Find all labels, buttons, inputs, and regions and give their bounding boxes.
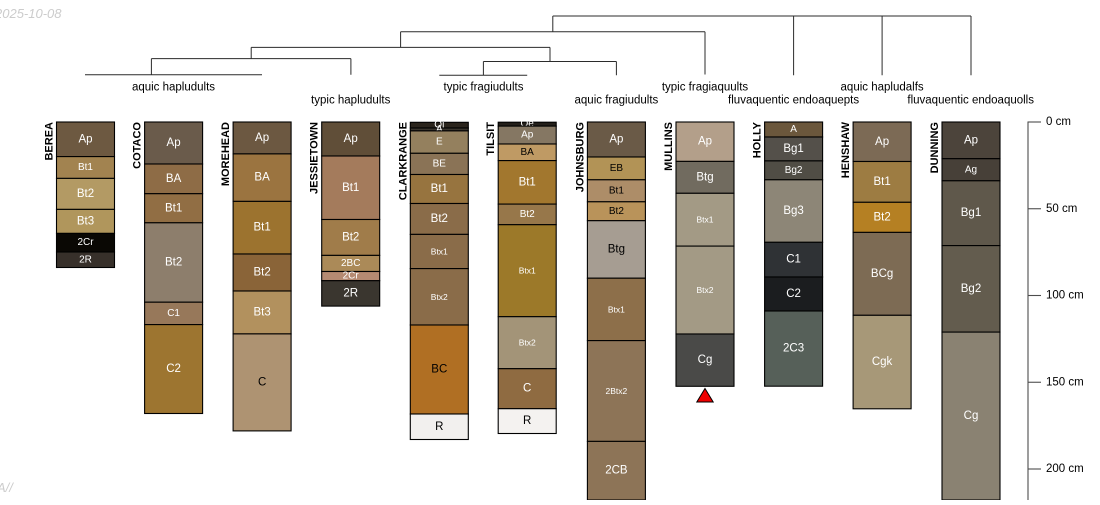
svg-text:DUNNING: DUNNING — [929, 122, 941, 173]
svg-text:COTACO: COTACO — [132, 122, 144, 169]
svg-text:2R: 2R — [79, 254, 92, 265]
svg-text:HOLLY: HOLLY — [752, 121, 764, 158]
svg-text:Bg2: Bg2 — [785, 165, 803, 176]
svg-text:2Cr: 2Cr — [343, 271, 360, 282]
svg-text:Bt2: Bt2 — [165, 257, 182, 269]
svg-text:Ap: Ap — [875, 136, 889, 148]
svg-text:100 cm: 100 cm — [1046, 290, 1084, 302]
svg-text:Ap: Ap — [521, 130, 534, 141]
svg-text:C: C — [258, 376, 266, 388]
svg-text:JOHNSBURG: JOHNSBURG — [574, 122, 586, 192]
svg-text:R: R — [523, 415, 531, 427]
svg-text:Btg: Btg — [608, 243, 625, 255]
svg-text:MOREHEAD: MOREHEAD — [220, 122, 232, 186]
svg-text:MULLINS: MULLINS — [663, 122, 675, 171]
svg-text:A: A — [790, 124, 797, 135]
svg-text:Bg3: Bg3 — [783, 205, 803, 217]
svg-text:Ag: Ag — [965, 164, 977, 175]
svg-text:Bg1: Bg1 — [961, 207, 981, 219]
svg-text:Cgk: Cgk — [872, 356, 893, 368]
svg-text:Ap: Ap — [255, 132, 269, 144]
svg-text:Cg: Cg — [964, 410, 979, 422]
svg-text:2BC: 2BC — [341, 258, 360, 269]
svg-text:2025-10-08: 2025-10-08 — [0, 6, 62, 21]
svg-text:fluvaquentic endoaquolls: fluvaquentic endoaquolls — [907, 95, 1034, 107]
svg-text:BEREA: BEREA — [44, 122, 56, 161]
svg-text:A//: A// — [0, 480, 14, 495]
svg-text:EB: EB — [610, 163, 624, 174]
svg-text:C2: C2 — [166, 363, 181, 375]
svg-text:Bt1: Bt1 — [342, 182, 359, 194]
svg-text:aquic hapludalfs: aquic hapludalfs — [841, 81, 924, 93]
svg-text:Btx1: Btx1 — [608, 304, 625, 314]
svg-text:Bt2: Bt2 — [873, 211, 890, 223]
svg-text:Ap: Ap — [167, 137, 181, 149]
svg-text:C2: C2 — [786, 288, 801, 300]
svg-text:aquic fragiudults: aquic fragiudults — [575, 95, 659, 107]
svg-text:Bt2: Bt2 — [253, 267, 270, 279]
svg-text:typic fragiaquults: typic fragiaquults — [662, 81, 749, 93]
svg-text:Btx2: Btx2 — [519, 338, 536, 348]
svg-text:Btx1: Btx1 — [696, 215, 713, 225]
svg-text:CLARKRANGE: CLARKRANGE — [397, 122, 409, 200]
svg-text:2Btx2: 2Btx2 — [606, 386, 628, 396]
svg-text:Bt3: Bt3 — [253, 306, 270, 318]
svg-text:Bt1: Bt1 — [253, 222, 270, 234]
svg-text:typic hapludults: typic hapludults — [311, 95, 391, 107]
svg-text:R: R — [435, 421, 443, 433]
svg-text:Ap: Ap — [344, 133, 358, 145]
svg-text:2C3: 2C3 — [783, 343, 804, 355]
svg-text:Btx1: Btx1 — [519, 266, 536, 276]
svg-text:BA: BA — [254, 172, 270, 184]
svg-text:50 cm: 50 cm — [1046, 203, 1077, 215]
svg-text:E: E — [436, 137, 443, 148]
svg-text:C: C — [523, 383, 531, 395]
svg-text:Ap: Ap — [698, 136, 712, 148]
svg-text:Btg: Btg — [696, 171, 713, 183]
svg-text:Ap: Ap — [964, 134, 978, 146]
svg-text:Btx2: Btx2 — [431, 292, 448, 302]
svg-text:BC: BC — [431, 364, 447, 376]
svg-text:Bt2: Bt2 — [431, 213, 448, 225]
svg-text:Ap: Ap — [609, 134, 623, 146]
svg-text:C1: C1 — [786, 254, 801, 266]
svg-text:150 cm: 150 cm — [1046, 376, 1084, 388]
svg-text:BCg: BCg — [871, 268, 893, 280]
svg-text:typic fragiudults: typic fragiudults — [444, 81, 524, 93]
svg-text:Bt1: Bt1 — [431, 183, 448, 195]
svg-text:Btx1: Btx1 — [431, 247, 448, 257]
svg-text:Btx2: Btx2 — [696, 285, 713, 295]
svg-text:2Cr: 2Cr — [77, 237, 94, 248]
svg-text:200 cm: 200 cm — [1046, 463, 1084, 475]
svg-text:Bt1: Bt1 — [165, 202, 182, 214]
svg-text:2CB: 2CB — [605, 465, 628, 477]
svg-text:0 cm: 0 cm — [1046, 116, 1071, 128]
svg-text:Bt1: Bt1 — [78, 162, 93, 173]
svg-text:BA: BA — [166, 173, 182, 185]
svg-text:C1: C1 — [167, 308, 180, 319]
svg-text:Bt1: Bt1 — [519, 176, 536, 188]
svg-text:JESSIETOWN: JESSIETOWN — [309, 122, 321, 194]
svg-text:Bt2: Bt2 — [609, 206, 624, 217]
svg-text:Cg: Cg — [698, 354, 713, 366]
svg-text:Bg1: Bg1 — [783, 143, 803, 155]
svg-text:BA: BA — [521, 147, 535, 158]
svg-text:Bg2: Bg2 — [961, 283, 981, 295]
svg-text:2R: 2R — [343, 287, 358, 299]
svg-text:Bt2: Bt2 — [520, 209, 535, 220]
svg-text:Bt2: Bt2 — [342, 231, 359, 243]
svg-text:Bt3: Bt3 — [77, 215, 94, 227]
svg-text:Bt1: Bt1 — [873, 176, 890, 188]
svg-text:Bt2: Bt2 — [77, 188, 94, 200]
svg-text:BE: BE — [433, 158, 447, 169]
svg-text:aquic hapludults: aquic hapludults — [132, 81, 215, 93]
svg-text:TILSIT: TILSIT — [485, 122, 497, 156]
svg-text:Bt1: Bt1 — [609, 185, 624, 196]
svg-text:HENSHAW: HENSHAW — [840, 121, 852, 178]
svg-text:Ap: Ap — [78, 133, 92, 145]
svg-text:fluvaquentic endoaquepts: fluvaquentic endoaquepts — [728, 95, 859, 107]
